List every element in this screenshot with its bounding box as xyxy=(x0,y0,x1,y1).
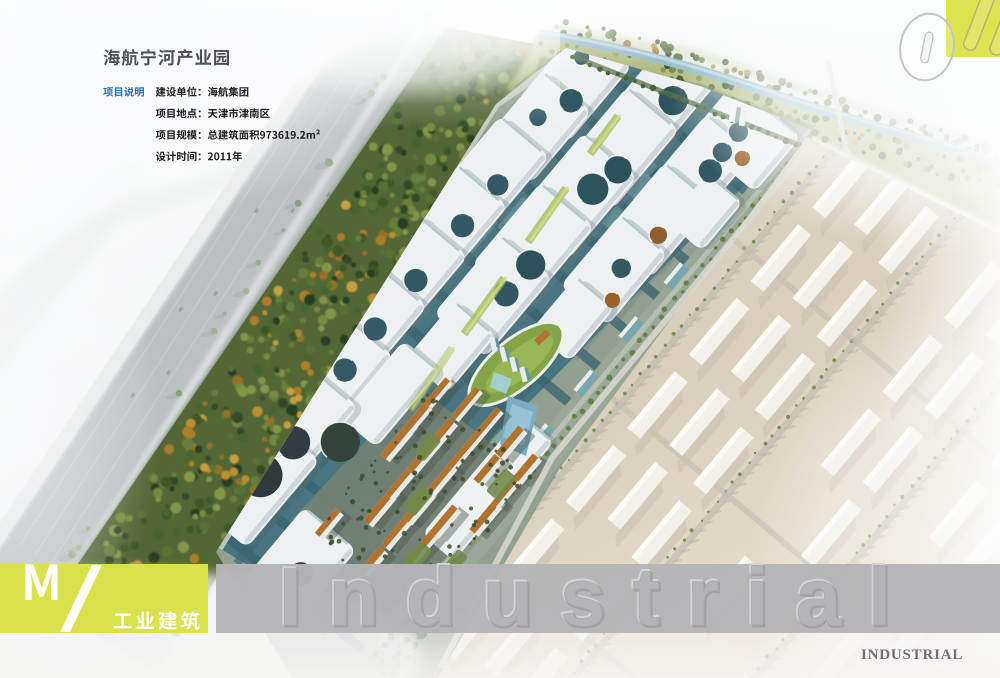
svg-text:Industrial: Industrial xyxy=(279,552,918,643)
svg-text:INDUSTRIAL: INDUSTRIAL xyxy=(861,647,963,663)
